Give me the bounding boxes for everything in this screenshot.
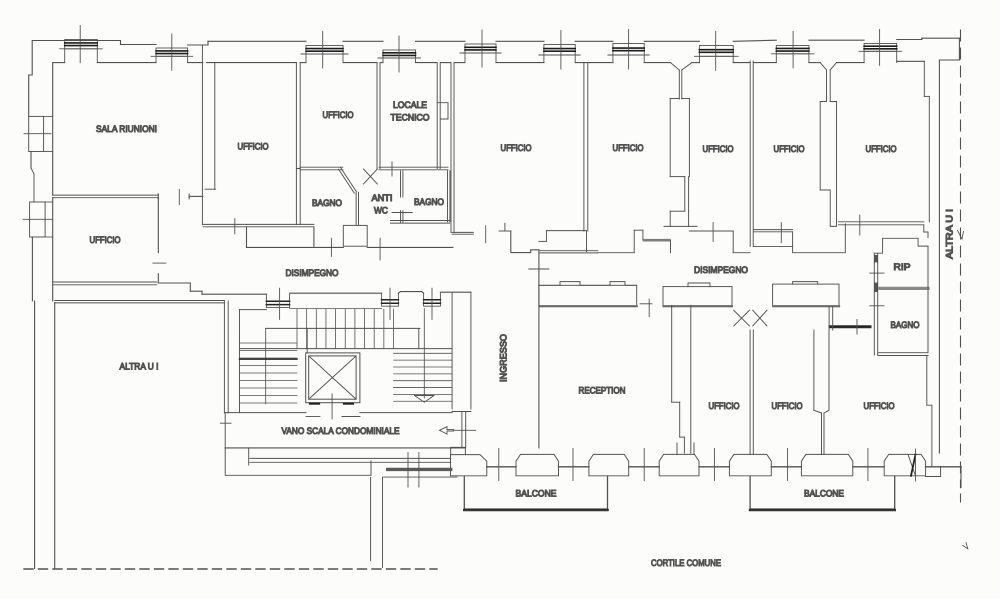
svg-text:BAGNO: BAGNO xyxy=(891,320,920,330)
svg-text:UFFICIO: UFFICIO xyxy=(90,235,121,245)
svg-text:BAGNO: BAGNO xyxy=(312,198,342,208)
svg-text:UFFICIO: UFFICIO xyxy=(703,144,734,154)
svg-text:UFFICIO: UFFICIO xyxy=(866,144,897,154)
svg-text:DISIMPEGNO: DISIMPEGNO xyxy=(286,268,339,278)
svg-text:ALTRA U I: ALTRA U I xyxy=(945,209,955,259)
svg-text:RECEPTION: RECEPTION xyxy=(579,386,626,396)
svg-text:BAGNO: BAGNO xyxy=(414,197,444,207)
svg-text:VANO SCALA CONDOMINIALE: VANO SCALA CONDOMINIALE xyxy=(282,426,400,436)
svg-text:CORTILE COMUNE: CORTILE COMUNE xyxy=(651,558,721,568)
svg-text:BALCONE: BALCONE xyxy=(804,489,844,499)
svg-text:ANTI: ANTI xyxy=(372,193,393,203)
svg-text:UFFICIO: UFFICIO xyxy=(323,110,354,120)
svg-text:WC: WC xyxy=(374,206,388,216)
svg-text:RIP: RIP xyxy=(894,262,911,272)
svg-text:UFFICIO: UFFICIO xyxy=(709,401,740,411)
svg-text:UFFICIO: UFFICIO xyxy=(772,401,803,411)
svg-text:SALA RIUNIONI: SALA RIUNIONI xyxy=(96,124,157,134)
svg-text:INGRESSO: INGRESSO xyxy=(499,334,509,382)
svg-text:UFFICIO: UFFICIO xyxy=(613,143,644,153)
svg-text:UFFICIO: UFFICIO xyxy=(238,142,269,152)
svg-text:UFFICIO: UFFICIO xyxy=(864,401,895,411)
svg-text:BALCONE: BALCONE xyxy=(516,489,557,499)
svg-text:UFFICIO: UFFICIO xyxy=(501,143,532,153)
svg-text:TECNICO: TECNICO xyxy=(391,113,430,123)
svg-text:UFFICIO: UFFICIO xyxy=(774,144,805,154)
svg-text:DISIMPEGNO: DISIMPEGNO xyxy=(694,265,748,275)
svg-text:LOCALE: LOCALE xyxy=(393,100,427,110)
svg-text:ALTRA U I: ALTRA U I xyxy=(120,362,159,372)
